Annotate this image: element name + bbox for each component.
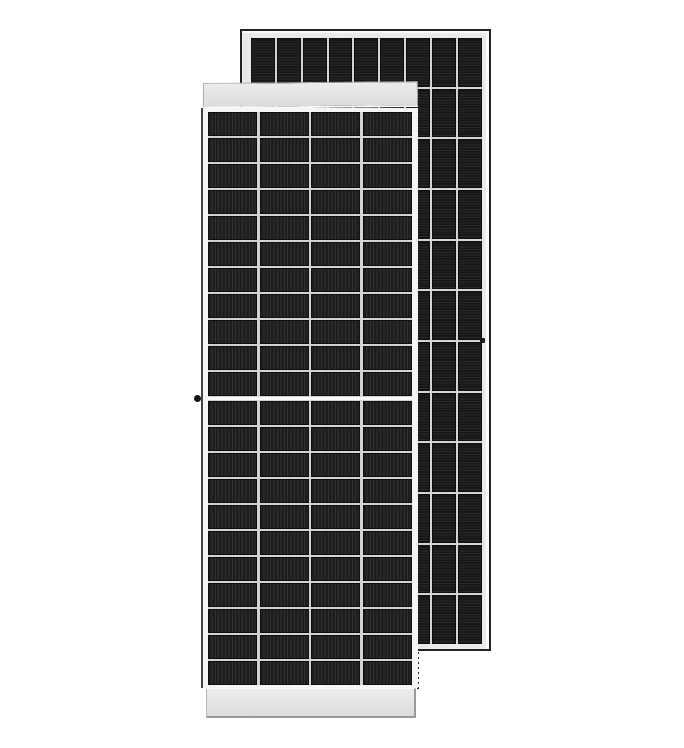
solar-cell [311,112,360,136]
solar-cell [208,112,257,136]
solar-cell [260,401,309,425]
solar-cell [363,112,412,136]
solar-cell [363,294,412,318]
solar-cell [458,342,482,391]
solar-cell [260,609,309,633]
solar-cell [208,346,257,370]
solar-cell [260,557,309,581]
solar-cell [311,320,360,344]
solar-cell [208,583,257,607]
solar-cell [311,479,360,503]
solar-cell [208,635,257,659]
solar-cell [363,609,412,633]
solar-cell [208,372,257,396]
solar-cell [458,393,482,442]
solar-cell [432,545,456,594]
solar-cell [260,190,309,214]
product-image-canvas [0,0,684,748]
solar-cell [363,557,412,581]
solar-cell [260,346,309,370]
solar-cell [260,216,309,240]
frame-clip-mark [417,395,425,401]
solar-cell [311,661,360,685]
solar-cell [260,372,309,396]
solar-cell [311,346,360,370]
front-panel-bottom-frame-cap [206,688,416,718]
solar-cell [208,164,257,188]
solar-cell [311,294,360,318]
solar-cell [251,38,275,87]
solar-cell [354,38,378,87]
solar-cell [432,190,456,239]
solar-cell [432,38,456,87]
solar-cell [311,372,360,396]
solar-cell [311,164,360,188]
solar-cell [363,479,412,503]
solar-cell [208,609,257,633]
solar-cell [208,320,257,344]
solar-cell [208,401,257,425]
solar-cell [311,401,360,425]
solar-cell [208,294,257,318]
solar-cell [260,242,309,266]
solar-cell [208,216,257,240]
solar-cell [363,505,412,529]
solar-cell [208,557,257,581]
grounding-hole-dot [194,395,201,402]
solar-cell [260,320,309,344]
solar-cell [208,268,257,292]
solar-cell [458,443,482,492]
solar-cell [432,89,456,138]
solar-cell [208,427,257,451]
solar-cell [260,427,309,451]
solar-cell [363,242,412,266]
solar-cell [458,595,482,644]
solar-cell [432,595,456,644]
solar-cell [208,505,257,529]
solar-cell [260,583,309,607]
solar-cell [380,38,404,87]
solar-cell [363,268,412,292]
solar-cell [208,661,257,685]
solar-cell [311,268,360,292]
solar-cell [260,479,309,503]
solar-cell [458,38,482,87]
solar-cell [363,216,412,240]
solar-cell [363,320,412,344]
solar-cell [458,241,482,290]
solar-cell [303,38,327,87]
solar-cell [458,190,482,239]
solar-cell [277,38,301,87]
front-panel-lower-half [208,401,412,685]
solar-cell [363,453,412,477]
solar-cell [363,661,412,685]
solar-cell [432,494,456,543]
solar-cell [311,583,360,607]
solar-cell [363,583,412,607]
solar-cell [311,505,360,529]
solar-cell [260,661,309,685]
solar-cell [260,635,309,659]
solar-cell [458,291,482,340]
solar-cell [458,89,482,138]
solar-cell [432,393,456,442]
solar-cell [363,401,412,425]
solar-cell [260,138,309,162]
solar-cell [363,190,412,214]
front-panel-cell-grid [208,112,412,685]
solar-cell [458,545,482,594]
solar-cell [260,453,309,477]
solar-cell [311,190,360,214]
solar-cell [432,342,456,391]
solar-cell [363,138,412,162]
solar-cell [208,453,257,477]
solar-cell [260,531,309,555]
solar-cell [208,138,257,162]
solar-cell [260,505,309,529]
solar-cell [311,635,360,659]
solar-cell [432,241,456,290]
solar-cell [458,139,482,188]
front-panel-upper-half [208,112,412,396]
solar-cell [432,139,456,188]
solar-cell [363,531,412,555]
solar-cell [329,38,353,87]
solar-cell [311,216,360,240]
solar-cell [260,268,309,292]
solar-cell [208,242,257,266]
front-solar-panel [201,108,418,689]
solar-cell [311,557,360,581]
frame-mounting-hole [480,338,485,343]
solar-cell [363,346,412,370]
solar-cell [260,112,309,136]
solar-cell [311,453,360,477]
solar-cell [311,427,360,451]
solar-cell [363,427,412,451]
solar-cell [311,531,360,555]
solar-cell [406,38,430,87]
solar-cell [311,138,360,162]
solar-cell [311,242,360,266]
solar-cell [363,635,412,659]
solar-cell [458,494,482,543]
solar-cell [432,291,456,340]
solar-cell [363,164,412,188]
solar-cell [363,372,412,396]
front-panel-top-frame-cap [203,81,418,108]
solar-cell [208,531,257,555]
solar-cell [208,479,257,503]
solar-cell [432,443,456,492]
solar-cell [260,164,309,188]
solar-cell [208,190,257,214]
solar-cell [260,294,309,318]
solar-cell [311,609,360,633]
